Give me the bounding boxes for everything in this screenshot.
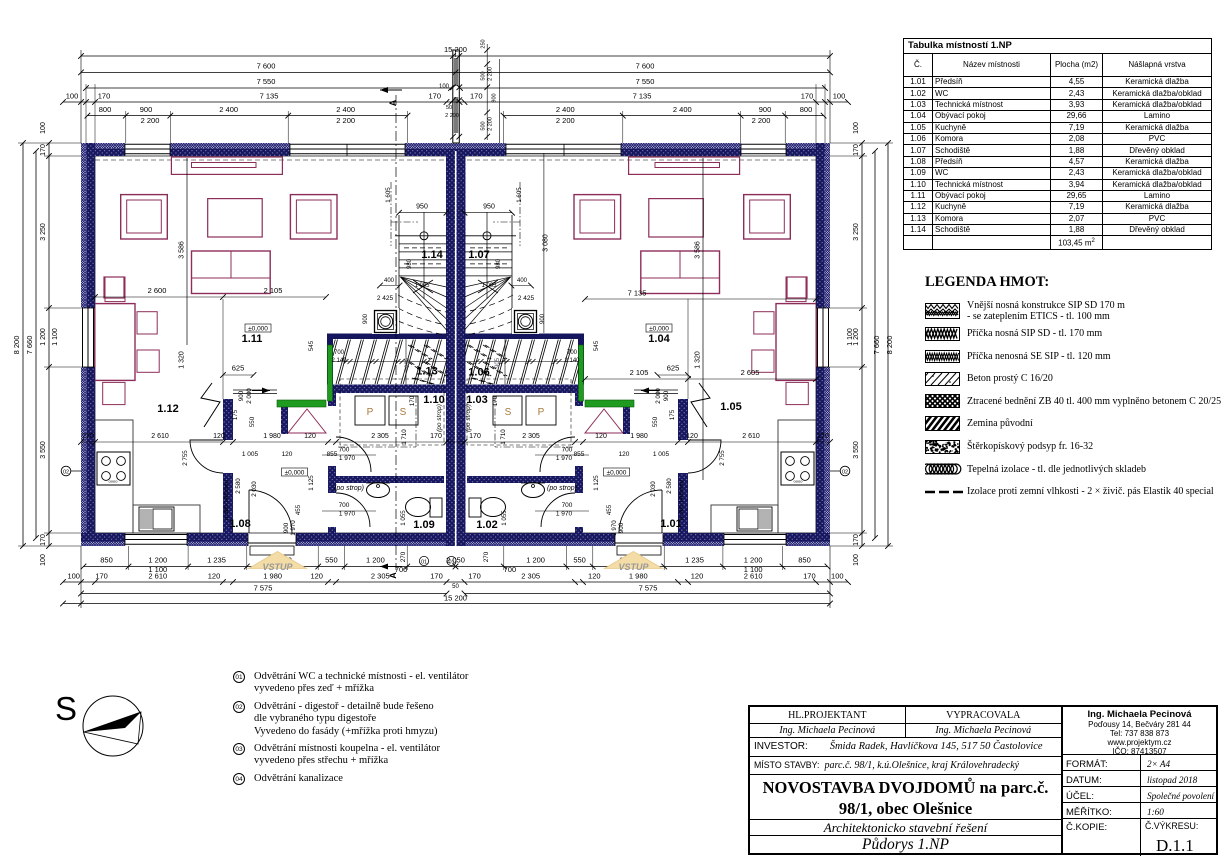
svg-text:625: 625 [667,364,680,373]
svg-text:2 400: 2 400 [556,105,575,114]
svg-text:855: 855 [327,451,338,458]
svg-text:2 605: 2 605 [741,368,760,377]
svg-text:(po strop): (po strop) [334,485,364,492]
svg-text:2 580: 2 580 [666,478,673,494]
svg-text:50: 50 [452,584,459,590]
svg-text:100: 100 [67,572,80,581]
svg-text:500: 500 [481,121,487,130]
svg-text:700: 700 [339,502,350,509]
svg-text:8 200: 8 200 [885,336,894,355]
svg-text:1 970: 1 970 [556,455,573,462]
svg-text:2 305: 2 305 [371,572,390,581]
svg-text:170: 170 [853,534,860,546]
svg-text:2 610: 2 610 [148,572,167,581]
svg-text:980: 980 [407,258,413,269]
svg-text:7 575: 7 575 [639,583,658,592]
svg-text:2 610: 2 610 [151,433,169,440]
svg-text:175: 175 [232,409,239,420]
svg-text:2 200: 2 200 [488,117,494,131]
svg-text:1 980: 1 980 [630,433,648,440]
svg-text:S: S [505,407,512,418]
svg-text:2 610: 2 610 [744,572,763,581]
svg-text:170: 170 [40,534,47,546]
svg-text:3 250: 3 250 [853,223,860,241]
svg-text:270: 270 [400,551,407,562]
svg-text:120: 120 [588,572,601,581]
svg-text:A: A [388,99,398,106]
svg-text:100: 100 [853,122,860,134]
svg-text:1 200: 1 200 [40,328,47,346]
svg-text:900: 900 [363,313,369,324]
svg-text:VSTUP: VSTUP [262,562,293,572]
svg-text:3 586: 3 586 [695,241,702,259]
svg-text:120: 120 [213,433,225,440]
svg-text:1.02: 1.02 [476,519,497,531]
svg-text:170: 170 [492,395,499,406]
svg-text:1 200: 1 200 [148,556,167,565]
svg-text:900: 900 [618,522,625,533]
svg-text:170: 170 [803,572,816,581]
svg-text:170: 170 [468,572,481,581]
svg-text:100: 100 [831,572,844,581]
svg-text:855: 855 [574,451,585,458]
svg-text:1 710: 1 710 [401,429,408,445]
svg-text:900: 900 [283,522,290,533]
svg-text:2 200: 2 200 [445,113,459,119]
svg-text:7 600: 7 600 [636,61,655,70]
svg-text:(po strop): (po strop) [465,404,472,432]
svg-text:1 005: 1 005 [242,451,259,458]
svg-text:545: 545 [593,340,600,351]
svg-text:2 105: 2 105 [264,286,283,295]
svg-text:120: 120 [208,572,221,581]
svg-text:7 550: 7 550 [636,77,655,86]
svg-text:455: 455 [606,504,613,515]
svg-text:oooo: oooo [794,479,804,484]
svg-text:7 660: 7 660 [872,336,881,355]
svg-text:170: 170 [428,92,441,101]
svg-text:3 250: 3 250 [40,223,47,241]
svg-text:oooo: oooo [109,479,119,484]
svg-text:550: 550 [325,556,338,565]
svg-text:S: S [400,407,407,418]
svg-text:170: 170 [430,572,443,581]
svg-text:2 200: 2 200 [141,116,160,125]
svg-text:2 305: 2 305 [522,433,540,440]
svg-text:100: 100 [66,92,79,101]
svg-text:100: 100 [833,92,846,101]
svg-text:100: 100 [853,554,860,566]
svg-text:VSTUP: VSTUP [618,562,649,572]
svg-text:1 970: 1 970 [339,455,356,462]
svg-text:1.04: 1.04 [648,333,670,345]
svg-text:7 135: 7 135 [628,289,647,298]
svg-text:01: 01 [448,559,454,565]
svg-text:2 000: 2 000 [246,388,253,404]
svg-text:3 550: 3 550 [853,441,860,459]
svg-text:100: 100 [439,84,450,90]
svg-text:120: 120 [686,433,698,440]
svg-text:1 200: 1 200 [853,328,860,346]
svg-text:(v.900-1400mm): (v.900-1400mm) [679,480,685,520]
svg-text:800: 800 [99,105,112,114]
svg-text:1.05: 1.05 [720,401,741,413]
svg-text:900: 900 [759,105,772,114]
svg-text:2 030: 2 030 [251,481,258,497]
svg-text:270: 270 [483,551,490,562]
svg-text:1 055: 1 055 [501,510,508,526]
svg-text:700: 700 [504,565,517,574]
svg-text:1 710: 1 710 [500,429,507,445]
svg-text:120: 120 [619,451,630,458]
svg-text:1 970: 1 970 [290,520,297,536]
svg-text:850: 850 [100,556,113,565]
svg-text:455: 455 [295,504,302,515]
svg-text:2 610: 2 610 [742,433,760,440]
svg-text:850: 850 [798,556,811,565]
svg-text:120: 120 [595,433,607,440]
svg-text:1 980: 1 980 [629,572,648,581]
svg-text:7 135: 7 135 [260,92,279,101]
svg-text:(po strop): (po strop) [547,485,577,492]
svg-text:02: 02 [63,469,69,475]
svg-text:800: 800 [800,105,813,114]
svg-text:1 100: 1 100 [52,328,59,346]
svg-text:550: 550 [249,416,256,427]
svg-text:170: 170 [409,395,416,406]
svg-text:7 600: 7 600 [257,61,276,70]
svg-text:1 970: 1 970 [611,520,618,536]
svg-text:P: P [367,407,374,418]
svg-text:170: 170 [469,433,481,440]
svg-text:900: 900 [540,313,546,324]
svg-text:270: 270 [82,433,94,440]
svg-text:1 605: 1 605 [516,187,523,203]
svg-text:2 600: 2 600 [148,286,167,295]
svg-text:170: 170 [801,92,814,101]
svg-text:550: 550 [573,556,586,565]
svg-text:700: 700 [562,447,573,454]
svg-text:900: 900 [492,93,498,102]
svg-text:120: 120 [691,572,704,581]
svg-text:2 755: 2 755 [182,450,189,466]
svg-text:170: 170 [470,92,483,101]
svg-text:A: A [388,572,398,579]
svg-text:120: 120 [304,433,316,440]
svg-text:3 550: 3 550 [40,441,47,459]
svg-text:700: 700 [562,502,573,509]
svg-text:1 200: 1 200 [526,556,545,565]
svg-text:900: 900 [663,390,670,401]
svg-text:1 200: 1 200 [366,556,385,565]
svg-text:545: 545 [308,340,315,351]
svg-text:170: 170 [430,433,442,440]
svg-text:7 660: 7 660 [25,336,34,355]
svg-text:400: 400 [384,278,395,284]
svg-text:01: 01 [421,559,427,565]
svg-text:700: 700 [567,350,578,356]
svg-text:7 550: 7 550 [257,77,276,86]
svg-text:2 200: 2 200 [488,67,494,81]
svg-text:2 140: 2 140 [331,358,347,364]
svg-text:905: 905 [405,357,411,368]
svg-text:1 125: 1 125 [593,475,600,491]
svg-text:2 755: 2 755 [719,450,726,466]
svg-text:1 235: 1 235 [207,556,226,565]
svg-text:1 005: 1 005 [653,451,670,458]
svg-text:2 200: 2 200 [336,116,355,125]
svg-text:±0,000: ±0,000 [649,326,669,333]
svg-text:±0,000: ±0,000 [607,470,627,477]
svg-text:170: 170 [98,92,111,101]
svg-text:170: 170 [40,144,47,156]
svg-text:2 105: 2 105 [630,368,649,377]
svg-text:8 200: 8 200 [12,336,21,355]
svg-text:170: 170 [853,144,860,156]
svg-text:980: 980 [496,258,502,269]
svg-text:2 580: 2 580 [235,478,242,494]
svg-text:±0,000: ±0,000 [285,470,305,477]
svg-text:3 586: 3 586 [179,241,186,259]
svg-text:1.07: 1.07 [468,249,489,261]
svg-text:1 235: 1 235 [685,556,704,565]
svg-text:(v.900-1400mm): (v.900-1400mm) [224,480,230,520]
svg-text:100: 100 [40,554,47,566]
svg-text:2 200: 2 200 [556,116,575,125]
svg-text:1.01: 1.01 [660,518,681,530]
svg-text:2 305: 2 305 [521,572,540,581]
svg-text:1.06: 1.06 [468,367,489,379]
svg-text:2 305: 2 305 [371,433,389,440]
svg-text:1 100: 1 100 [847,328,854,346]
svg-text:1.11: 1.11 [242,333,263,345]
svg-text:700: 700 [334,350,345,356]
svg-text:900: 900 [238,390,245,401]
svg-text:120: 120 [310,572,323,581]
svg-text:1.08: 1.08 [229,518,250,530]
svg-text:1.12: 1.12 [157,403,178,415]
svg-text:1 005: 1 005 [414,283,430,289]
svg-text:500: 500 [481,71,487,80]
svg-text:±0,000: ±0,000 [248,326,268,333]
svg-text:1 320: 1 320 [695,351,702,369]
svg-text:1.13: 1.13 [416,366,437,378]
svg-text:1 980: 1 980 [263,572,282,581]
svg-text:700: 700 [339,447,350,454]
svg-text:1 970: 1 970 [339,511,356,518]
svg-text:1 320: 1 320 [179,351,186,369]
svg-text:1 005: 1 005 [481,283,497,289]
svg-text:2 400: 2 400 [336,105,355,114]
svg-text:1.14: 1.14 [421,249,443,261]
svg-text:2 425: 2 425 [518,295,535,302]
svg-text:1 055: 1 055 [400,510,407,526]
svg-text:905: 905 [495,357,501,368]
svg-text:170: 170 [95,572,108,581]
svg-text:P: P [538,407,545,418]
svg-text:2 400: 2 400 [673,105,692,114]
svg-text:100: 100 [40,122,47,134]
svg-text:250: 250 [481,39,487,48]
svg-text:2 140: 2 140 [564,358,580,364]
svg-text:1.09: 1.09 [413,519,434,531]
svg-text:1 970: 1 970 [556,511,573,518]
svg-text:7 575: 7 575 [254,583,273,592]
svg-text:1 980: 1 980 [263,433,281,440]
svg-text:02: 02 [842,469,848,475]
svg-text:625: 625 [232,364,245,373]
svg-text:1.03: 1.03 [466,394,487,406]
svg-text:1.10: 1.10 [423,394,444,406]
svg-text:50: 50 [446,105,452,111]
svg-text:7 135: 7 135 [633,92,652,101]
svg-text:900: 900 [140,105,153,114]
svg-text:2 030: 2 030 [650,481,657,497]
svg-text:270: 270 [817,433,829,440]
svg-text:950: 950 [416,204,428,211]
svg-text:120: 120 [282,451,293,458]
svg-text:400: 400 [517,278,528,284]
svg-text:550: 550 [652,416,659,427]
svg-text:15 200: 15 200 [444,593,467,602]
svg-text:175: 175 [669,409,676,420]
svg-text:3 080: 3 080 [542,234,549,252]
svg-text:950: 950 [483,204,495,211]
svg-text:2 200: 2 200 [752,116,771,125]
svg-text:1 200: 1 200 [744,556,763,565]
svg-text:(po strop): (po strop) [436,404,443,432]
svg-text:2 425: 2 425 [377,295,394,302]
svg-text:2 400: 2 400 [219,105,238,114]
svg-text:1 125: 1 125 [308,475,315,491]
